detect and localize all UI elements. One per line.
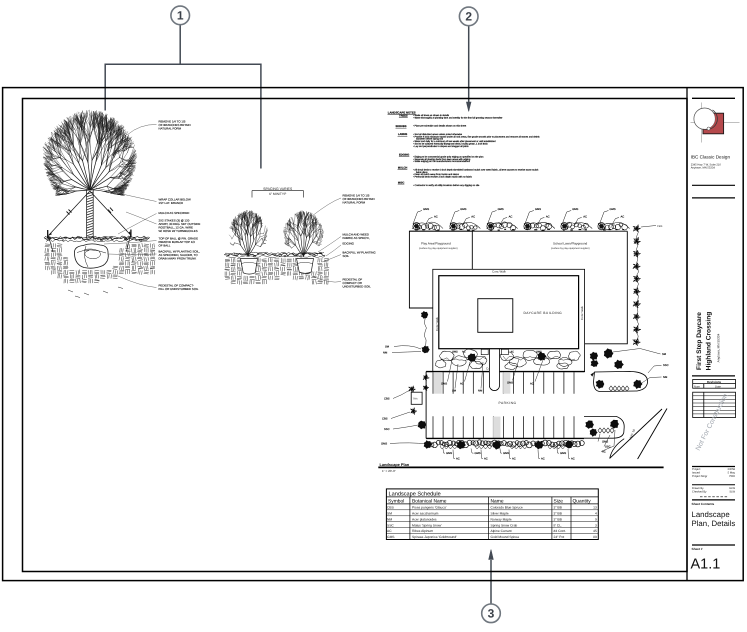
svg-text:A1.1: A1.1 xyxy=(691,557,721,573)
svg-text:AC: AC xyxy=(460,383,464,386)
svg-text:8' CL.: 8' CL. xyxy=(554,523,563,527)
svg-text:NM: NM xyxy=(663,376,668,379)
svg-text:FABRIC AS SPEC'D,: FABRIC AS SPEC'D, xyxy=(343,236,370,240)
svg-text:Landscape Plan: Landscape Plan xyxy=(380,462,410,467)
svg-text:• Contractor to verify all uti: • Contractor to verify all utility locat… xyxy=(413,184,480,187)
svg-text:SSC: SSC xyxy=(387,523,394,527)
svg-text:Quantity: Quantity xyxy=(573,498,592,504)
svg-text:SLW: SLW xyxy=(729,490,735,493)
svg-text:AC: AC xyxy=(530,383,534,386)
svg-text:AC: AC xyxy=(621,216,625,219)
svg-text:SM: SM xyxy=(662,353,667,356)
svg-text:MULCH AS SPECIFIED: MULCH AS SPECIFIED xyxy=(159,211,190,215)
svg-text:MULCH: MULCH xyxy=(398,166,407,169)
svg-text:NM: NM xyxy=(387,517,392,521)
svg-text:GMS: GMS xyxy=(460,208,466,211)
svg-text:PRH: PRH xyxy=(729,475,735,478)
svg-text:#4 Cont.: #4 Cont. xyxy=(554,529,567,533)
svg-text:AC: AC xyxy=(484,458,488,461)
svg-text:SSC: SSC xyxy=(605,446,611,449)
svg-text:AC: AC xyxy=(571,458,575,461)
svg-text:SM: SM xyxy=(387,511,392,515)
svg-text:Name: Name xyxy=(491,498,504,504)
svg-text:AC: AC xyxy=(471,216,475,219)
svg-text:Spring Snow Crab: Spring Snow Crab xyxy=(491,523,518,527)
svg-text:AC: AC xyxy=(583,216,587,219)
svg-text:DAYCARE BUILDING: DAYCARE BUILDING xyxy=(524,311,563,315)
svg-text:PARKING: PARKING xyxy=(499,401,517,405)
svg-text:NM: NM xyxy=(478,390,483,393)
svg-text:Num: Num xyxy=(694,384,701,388)
svg-text:GMS: GMS xyxy=(610,208,616,211)
svg-text:3" BB: 3" BB xyxy=(554,517,563,521)
svg-text:Symbol: Symbol xyxy=(388,498,404,504)
svg-text:• Water thoroughly at planting: • Water thoroughly at planting time and … xyxy=(413,116,503,119)
svg-text:EDGING: EDGING xyxy=(343,242,355,246)
svg-text:OF BALL: OF BALL xyxy=(159,244,171,248)
svg-text:Ribes Alpinum: Ribes Alpinum xyxy=(412,529,433,533)
svg-text:13: 13 xyxy=(593,506,597,510)
svg-text:GMS: GMS xyxy=(602,441,608,444)
svg-text:AC: AC xyxy=(512,458,516,461)
svg-text:Date: Date xyxy=(715,384,721,388)
svg-text:GMS: GMS xyxy=(572,208,578,211)
svg-text:GMS: GMS xyxy=(446,452,452,455)
svg-text:GMS: GMS xyxy=(441,383,447,386)
svg-text:Gold Mound Spirea: Gold Mound Spirea xyxy=(491,535,520,539)
svg-text:GMS: GMS xyxy=(535,208,541,211)
svg-text:Anytown, MN 55334: Anytown, MN 55334 xyxy=(717,333,721,362)
svg-text:Highland Crossing: Highland Crossing xyxy=(706,312,713,371)
svg-text:9: 9 xyxy=(595,517,597,521)
svg-text:AC: AC xyxy=(387,529,392,533)
svg-text:Anytown, MN 55334: Anytown, MN 55334 xyxy=(691,167,716,170)
svg-text:3" BB: 3" BB xyxy=(554,506,563,510)
svg-text:SOIL: SOIL xyxy=(343,254,350,258)
svg-text:• Plant per schedule and detai: • Plant per schedule and details shown o… xyxy=(413,125,467,128)
svg-text:Alpine Currant: Alpine Currant xyxy=(491,529,512,533)
svg-text:Size: Size xyxy=(554,498,564,504)
svg-text:Picea pungens 'Glauca': Picea pungens 'Glauca' xyxy=(412,506,447,510)
svg-text:SSC: SSC xyxy=(663,364,669,367)
svg-text:Revisions: Revisions xyxy=(707,380,722,384)
svg-text:4: 4 xyxy=(595,511,597,515)
svg-text:SPACING VARIES: SPACING VARIES xyxy=(263,187,293,191)
svg-text:SM: SM xyxy=(385,346,390,349)
svg-text:GMS: GMS xyxy=(560,452,566,455)
svg-text:GMS: GMS xyxy=(475,452,481,455)
svg-text:GMS: GMS xyxy=(423,208,429,211)
svg-text:6” MIN/TYP: 6” MIN/TYP xyxy=(269,192,287,196)
svg-text:AC: AC xyxy=(509,216,513,219)
svg-text:GMS: GMS xyxy=(507,382,513,385)
svg-text:TRA: TRA xyxy=(413,398,418,401)
svg-text:• All shrub beds to receive 3: • All shrub beds to receive 3 inch depth… xyxy=(413,168,539,171)
svg-text:GMS: GMS xyxy=(381,443,387,446)
svg-text:Acer platanoides: Acer platanoides xyxy=(412,517,437,521)
svg-text:• Perennial beds receive 2 inc: • Perennial beds receive 2 inch depth mu… xyxy=(413,176,473,179)
svg-text:CBS: CBS xyxy=(657,225,663,228)
svg-text:NM: NM xyxy=(383,352,388,355)
svg-text:2: 2 xyxy=(465,10,472,24)
svg-text:CBS: CBS xyxy=(384,398,390,401)
svg-text:IBC Classic Design: IBC Classic Design xyxy=(691,154,731,159)
svg-text:GMS: GMS xyxy=(387,535,395,539)
svg-text:First Step Daycare: First Step Daycare xyxy=(696,312,703,370)
svg-text:TREES: TREES xyxy=(399,114,408,117)
svg-text:CBS: CBS xyxy=(387,506,395,510)
svg-text:NATURAL FORM: NATURAL FORM xyxy=(343,201,366,205)
svg-text:(surface by play equipment sup: (surface by play equipment supplier) xyxy=(419,247,458,250)
svg-text:3: 3 xyxy=(595,523,597,527)
svg-text:SHRUBS: SHRUBS xyxy=(396,125,407,128)
svg-text:• Lay sod perpendicular to slo: • Lay sod perpendicular to slopes and st… xyxy=(413,145,469,148)
svg-text:UNDISTURBED SOIL: UNDISTURBED SOIL xyxy=(343,285,372,289)
svg-text:Silver Maple: Silver Maple xyxy=(491,511,509,515)
svg-text:Sheet #: Sheet # xyxy=(692,547,703,551)
svg-text:Spiraea Japonica 'Goldmound': Spiraea Japonica 'Goldmound' xyxy=(412,535,457,539)
svg-text:Play Area/Playground: Play Area/Playground xyxy=(421,242,451,246)
svg-text:Project Mngr: Project Mngr xyxy=(692,475,707,478)
svg-text:Acer saccharinum: Acer saccharinum xyxy=(412,511,439,515)
svg-text:24" Pot: 24" Pot xyxy=(554,535,565,539)
svg-text:LAWNS: LAWNS xyxy=(398,133,408,136)
svg-text:NATURAL FORM: NATURAL FORM xyxy=(159,127,182,131)
svg-text:• Stake edging per the manufac: • Stake edging per the manufacturers rec… xyxy=(413,160,471,163)
svg-text:Conc Walk: Conc Walk xyxy=(492,269,506,273)
svg-text:AC: AC xyxy=(456,458,460,461)
svg-text:CBS: CBS xyxy=(382,418,388,421)
svg-text:EDGING: EDGING xyxy=(399,153,409,156)
svg-text:Landscape Schedule: Landscape Schedule xyxy=(389,490,441,497)
svg-text:1” = 20’-0”: 1” = 20’-0” xyxy=(382,469,396,473)
svg-text:(surface by play equipment sup: (surface by play equipment supplier) xyxy=(551,247,590,250)
svg-text:Sheet Contents: Sheet Contents xyxy=(692,502,715,506)
svg-text:3" BB: 3" BB xyxy=(554,511,563,515)
svg-text:Checked By: Checked By xyxy=(692,490,707,493)
svg-text:45: 45 xyxy=(593,529,597,533)
svg-text:89: 89 xyxy=(593,535,597,539)
svg-text:1ST LAT. BRANCH: 1ST LAT. BRANCH xyxy=(159,201,184,205)
svg-text:Landscape: Landscape xyxy=(692,510,730,519)
svg-text:1: 1 xyxy=(177,9,184,23)
svg-text:Conc Walk: Conc Walk xyxy=(580,306,584,320)
svg-text:Norway Maple: Norway Maple xyxy=(491,517,512,521)
svg-text:AC: AC xyxy=(511,351,515,354)
svg-text:MISC: MISC xyxy=(398,182,405,185)
svg-text:Malus 'Spring Snow': Malus 'Spring Snow' xyxy=(412,523,442,527)
svg-text:GMS: GMS xyxy=(452,351,458,354)
svg-text:AC: AC xyxy=(546,216,550,219)
svg-text:GMS: GMS xyxy=(498,208,504,211)
svg-text:AC: AC xyxy=(434,216,438,219)
svg-text:SSC: SSC xyxy=(384,428,390,431)
svg-text:GMS: GMS xyxy=(536,351,542,354)
svg-text:FILL OR UNDISTURBED SOIL: FILL OR UNDISTURBED SOIL xyxy=(159,287,199,291)
svg-text:Not For Construction: Not For Construction xyxy=(695,393,730,452)
svg-text:AC: AC xyxy=(541,458,545,461)
svg-text:SM: SM xyxy=(452,390,457,393)
svg-text:AC: AC xyxy=(462,351,466,354)
svg-text:W/ HOSE W/ TURNBUCKLES: W/ HOSE W/ TURNBUCKLES xyxy=(159,229,198,233)
svg-text:GMS: GMS xyxy=(503,452,509,455)
svg-text:DRAIN AWAY FROM TRUNK: DRAIN AWAY FROM TRUNK xyxy=(159,257,197,261)
svg-text:Plan, Details: Plan, Details xyxy=(692,519,736,528)
svg-text:Botanical Name: Botanical Name xyxy=(412,498,447,504)
svg-text:School Lawn/Playground: School Lawn/Playground xyxy=(553,242,588,246)
svg-text:3: 3 xyxy=(488,607,495,621)
svg-text:Colorado Blue Spruce: Colorado Blue Spruce xyxy=(491,506,523,510)
